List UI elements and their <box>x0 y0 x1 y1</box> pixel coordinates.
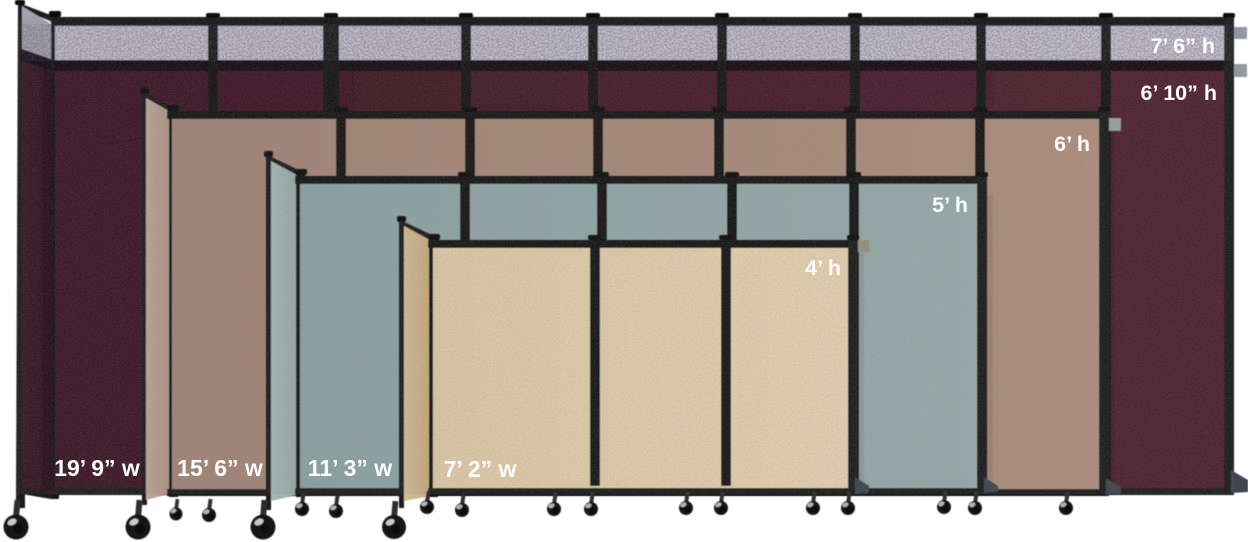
svg-text:6’ h: 6’ h <box>1054 132 1090 156</box>
svg-text:11’ 3” w: 11’ 3” w <box>308 455 393 481</box>
svg-text:6’ 10” h: 6’ 10” h <box>1141 81 1218 105</box>
svg-text:19’ 9” w: 19’ 9” w <box>54 455 140 481</box>
svg-text:7’ 2” w: 7’ 2” w <box>444 456 517 482</box>
svg-text:15’ 6” w: 15’ 6” w <box>177 455 263 481</box>
svg-text:4’ h: 4’ h <box>805 256 841 280</box>
svg-text:7’ 6” h: 7’ 6” h <box>1150 34 1215 58</box>
svg-text:5’ h: 5’ h <box>932 193 968 217</box>
